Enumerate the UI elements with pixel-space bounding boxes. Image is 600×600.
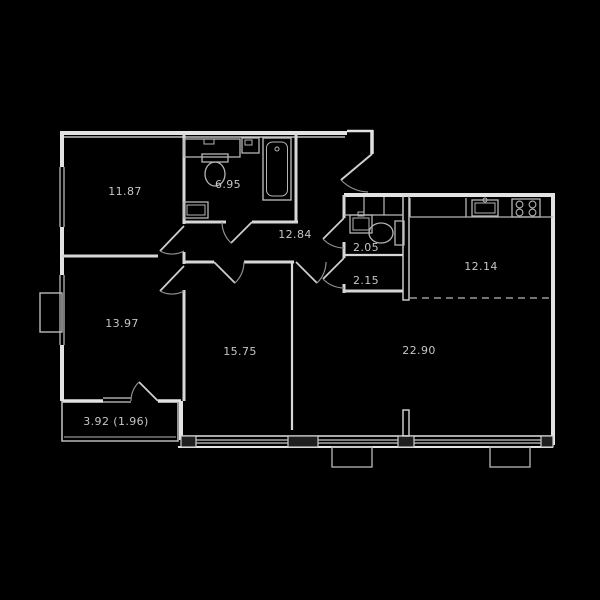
room-label-bathroom: 6.95 [215,178,241,191]
room-label-bedroom-top-left: 11.87 [108,185,142,198]
bathtub-icon [263,138,291,200]
room-label-storage: 2.15 [353,274,379,287]
wall-pier [541,436,553,447]
window-basket [490,447,530,467]
room-label-bedroom-bottom-left: 13.97 [105,317,139,330]
door-bedroom-top [160,226,184,254]
door-bedroom-bottom [160,266,184,294]
door-wc [323,218,344,248]
room-label-kitchen: 12.14 [464,260,498,273]
stove-icon [512,199,540,217]
kitchen-sink-icon [472,198,498,216]
room-label-wc: 2.05 [353,241,379,254]
floor-plan-canvas: 11.87 6.95 12.84 2.05 2.15 12.14 13.97 1… [0,0,600,600]
balcony [62,382,181,441]
floor-plan: 11.87 6.95 12.84 2.05 2.15 12.14 13.97 1… [0,0,600,600]
room-label-living-room: 22.90 [402,344,436,357]
room-labels: 11.87 6.95 12.84 2.05 2.15 12.14 13.97 1… [83,178,497,428]
balcony-door [131,382,158,401]
kitchen-fixtures [410,198,553,217]
window-living-right [414,440,541,443]
window-center-room [196,440,288,443]
room-label-room-center: 15.75 [223,345,257,358]
window-pier-wall [403,410,409,436]
washing-machine-icon [242,138,259,153]
door-living-room [296,262,326,283]
bottom-wall [178,410,553,467]
window-basket [332,447,372,467]
shower-tray-icon [184,202,208,218]
kitchen-wall [403,195,409,300]
outer-walls [60,130,553,445]
balcony-window [103,398,131,402]
wc-sink-icon [350,212,372,233]
door-center-room [214,262,244,283]
entrance-door [341,154,372,192]
wall-pier [398,436,414,447]
window-living-left [318,440,398,443]
wall-pier [181,436,196,447]
room-label-hallway: 12.84 [278,228,312,241]
window-bedroom-top [58,167,66,227]
room-label-balcony: 3.92 (1.96) [83,415,148,428]
door-bathroom [222,222,252,243]
wall-pier [288,436,318,447]
duct-cells [344,197,403,215]
